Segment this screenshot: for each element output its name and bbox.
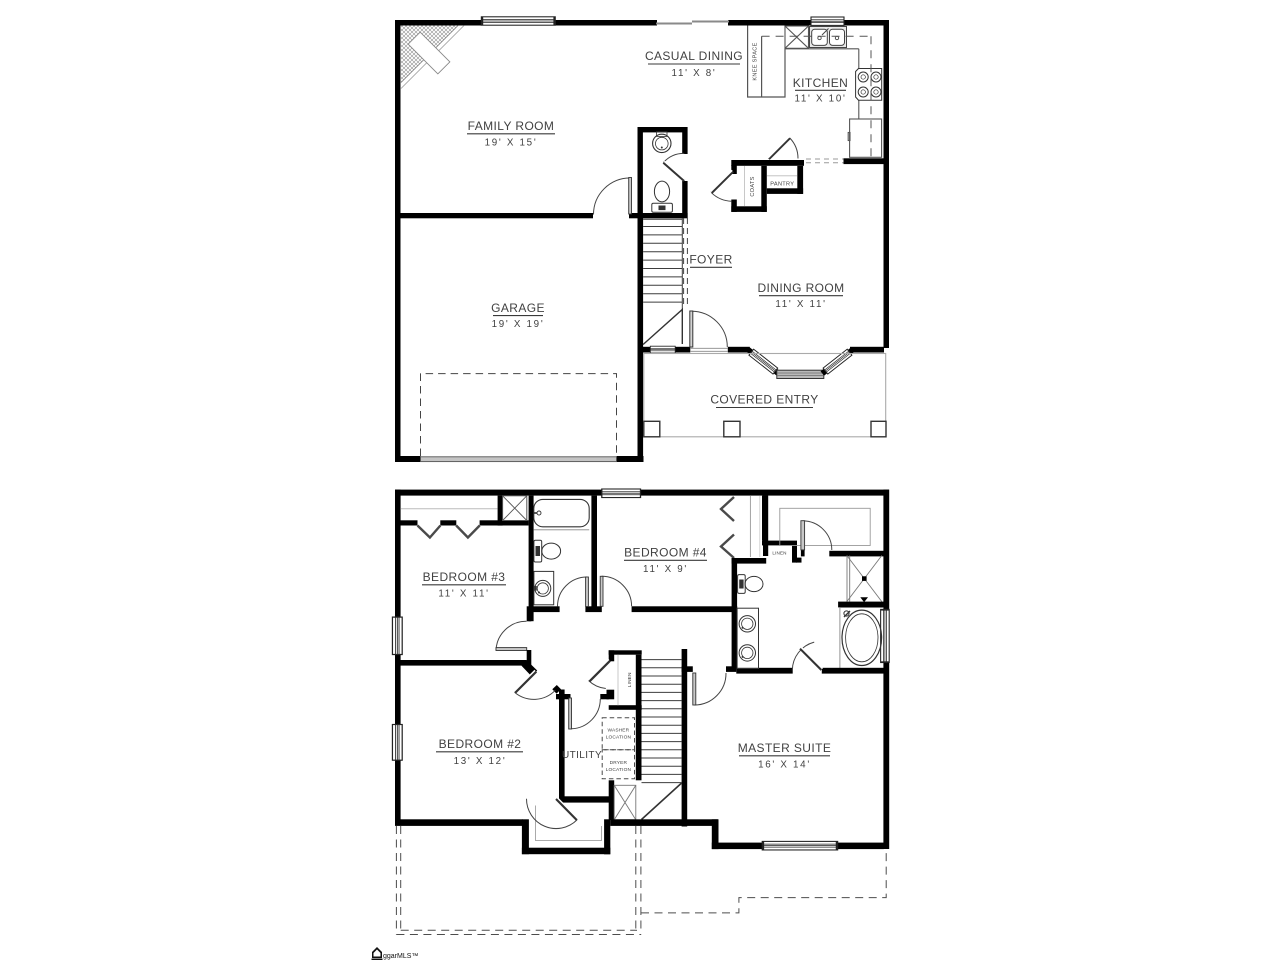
svg-text:LOCATION: LOCATION <box>606 767 632 773</box>
svg-text:KITCHEN: KITCHEN <box>793 76 848 90</box>
svg-text:BEDROOM #2: BEDROOM #2 <box>439 737 522 751</box>
svg-text:13' X 12': 13' X 12' <box>454 756 507 767</box>
svg-text:11' X 8': 11' X 8' <box>672 68 717 79</box>
svg-text:BEDROOM #3: BEDROOM #3 <box>423 570 506 584</box>
svg-text:LINEN: LINEN <box>772 551 786 556</box>
svg-text:BEDROOM #4: BEDROOM #4 <box>624 546 707 560</box>
svg-text:KNEE SPACE: KNEE SPACE <box>753 42 759 80</box>
svg-text:LOCATION: LOCATION <box>606 735 632 741</box>
svg-text:19' X 15': 19' X 15' <box>485 138 538 149</box>
svg-text:DRYER: DRYER <box>610 760 628 766</box>
svg-text:GARAGE: GARAGE <box>491 301 545 315</box>
svg-text:16' X 14': 16' X 14' <box>758 760 811 771</box>
svg-text:11' X 10': 11' X 10' <box>794 94 846 105</box>
svg-text:FOYER: FOYER <box>689 253 732 267</box>
svg-text:CASUAL DINING: CASUAL DINING <box>645 49 743 63</box>
svg-text:COVERED ENTRY: COVERED ENTRY <box>710 393 818 407</box>
svg-text:11' X 11': 11' X 11' <box>775 299 826 310</box>
svg-text:ggarMLS™: ggarMLS™ <box>383 953 418 960</box>
svg-text:19' X 19': 19' X 19' <box>492 319 545 330</box>
svg-text:11' X 11': 11' X 11' <box>438 589 489 600</box>
svg-text:MASTER SUITE: MASTER SUITE <box>738 741 831 755</box>
svg-text:DINING ROOM: DINING ROOM <box>757 281 844 295</box>
svg-text:WASHER: WASHER <box>608 728 630 734</box>
svg-text:PANTRY: PANTRY <box>770 182 794 188</box>
svg-text:LINEN: LINEN <box>627 672 633 687</box>
svg-text:11' X 9': 11' X 9' <box>643 564 688 575</box>
svg-text:FAMILY ROOM: FAMILY ROOM <box>468 119 555 133</box>
svg-text:COATS: COATS <box>750 176 756 196</box>
svg-text:UTILITY: UTILITY <box>562 750 602 761</box>
